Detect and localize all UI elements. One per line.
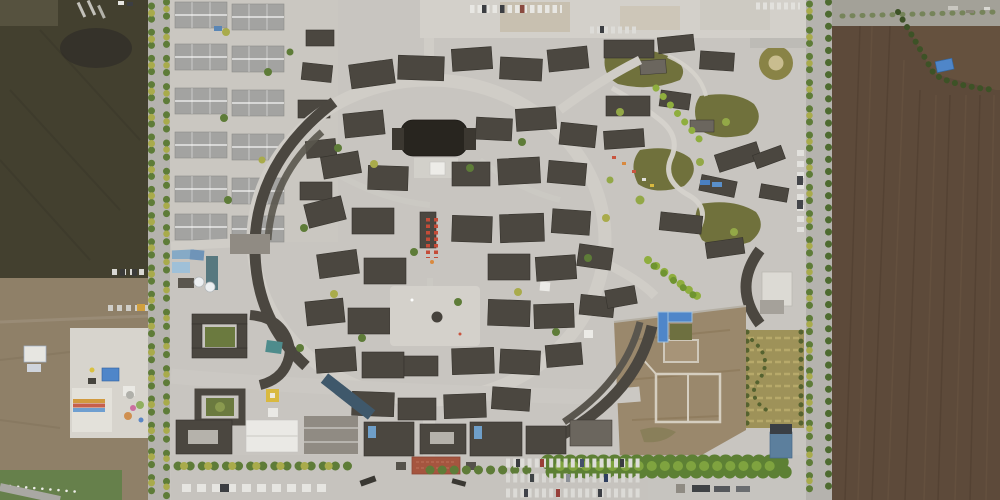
west-road	[148, 0, 170, 500]
central-plaza	[390, 286, 480, 346]
white-tank	[205, 282, 215, 292]
yellow-machine	[137, 304, 145, 311]
white-tents	[24, 346, 46, 362]
slate-blue-building	[770, 432, 792, 458]
grass-corner	[0, 470, 122, 500]
white-tank	[194, 277, 204, 287]
aerial-photo	[0, 0, 1000, 500]
aerial-photo-canvas	[0, 0, 1000, 500]
blue-tent	[102, 368, 119, 381]
round-well	[432, 312, 443, 323]
glass-skylight	[474, 426, 482, 439]
courtyard-garden	[205, 327, 235, 347]
teal-court	[265, 340, 283, 354]
bus	[714, 486, 730, 492]
pool-courtyard	[658, 312, 692, 342]
southeast-dirt-lot	[614, 306, 746, 458]
east-farmland	[832, 0, 1000, 500]
white-marquee	[430, 162, 445, 175]
formal-garden	[744, 330, 804, 428]
north-parking	[420, 0, 806, 38]
bus	[692, 485, 710, 492]
west-farmland	[0, 0, 156, 500]
fairground	[70, 328, 156, 438]
